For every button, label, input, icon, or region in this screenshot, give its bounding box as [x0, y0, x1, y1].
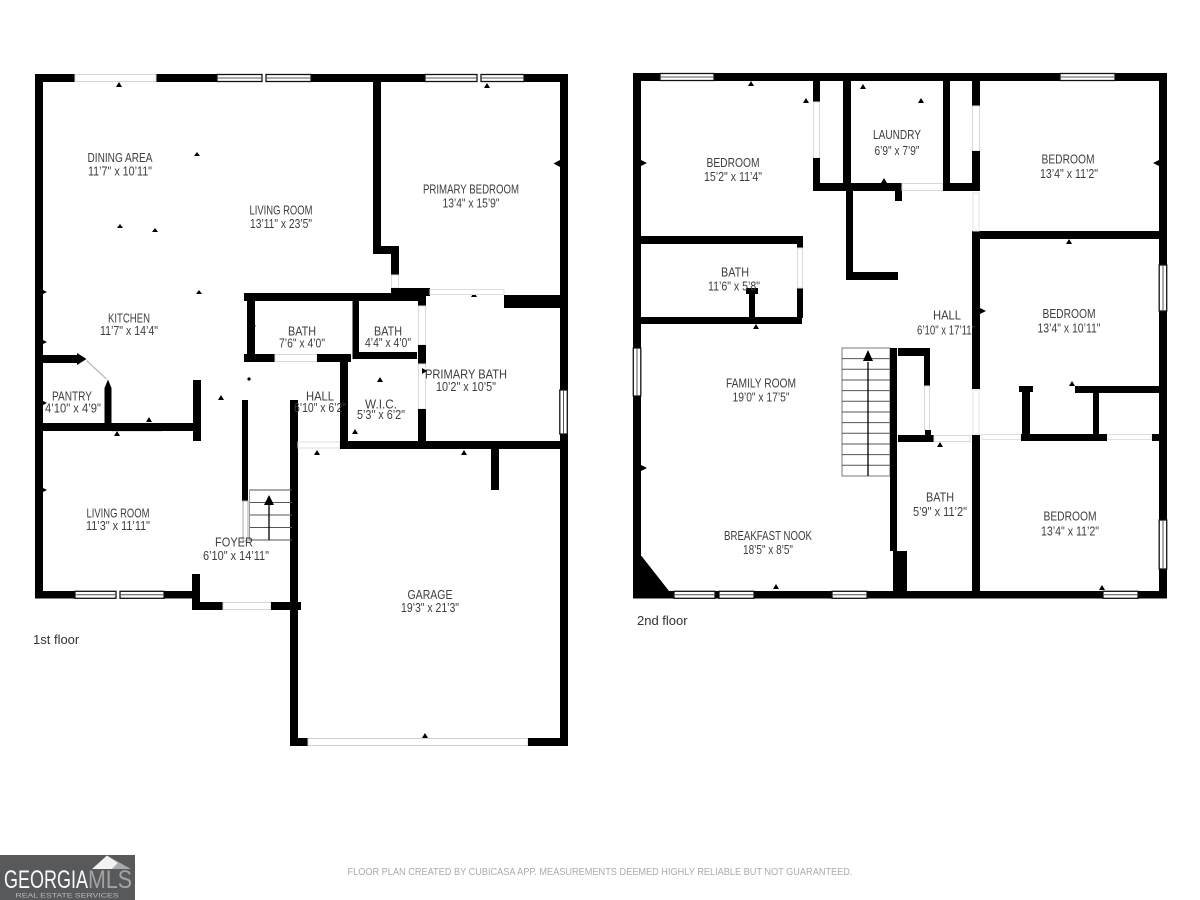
svg-text:13’4" x 15’9": 13’4" x 15’9"	[443, 196, 500, 211]
svg-text:7’6" x 4’0": 7’6" x 4’0"	[279, 336, 325, 351]
svg-text:FLOOR PLAN CREATED BY CUBICASA: FLOOR PLAN CREATED BY CUBICASA APP. MEAS…	[348, 867, 853, 878]
svg-text:BEDROOM: BEDROOM	[1042, 152, 1095, 167]
svg-text:5’9" x 11’2": 5’9" x 11’2"	[913, 504, 967, 519]
svg-text:HALL: HALL	[933, 308, 961, 323]
svg-text:4’4" x 4’0": 4’4" x 4’0"	[365, 335, 411, 350]
svg-text:11’3" x 11’11": 11’3" x 11’11"	[86, 518, 150, 533]
svg-text:19’0" x 17’5": 19’0" x 17’5"	[733, 390, 790, 405]
svg-text:GEORGIA: GEORGIA	[4, 866, 88, 894]
svg-text:13’4" x 10’11": 13’4" x 10’11"	[1038, 321, 1101, 336]
svg-text:BEDROOM: BEDROOM	[707, 155, 760, 170]
svg-text:18’5" x 8’5": 18’5" x 8’5"	[743, 542, 793, 557]
svg-text:15’2" x 11’4": 15’2" x 11’4"	[704, 169, 762, 184]
svg-text:11’7" x 14’4": 11’7" x 14’4"	[100, 323, 158, 338]
svg-text:13’4" x 11’2": 13’4" x 11’2"	[1040, 166, 1098, 181]
svg-text:2nd floor: 2nd floor	[637, 613, 688, 628]
svg-text:11’7" x 10’11": 11’7" x 10’11"	[88, 164, 152, 179]
svg-text:5’3" x 6’2": 5’3" x 6’2"	[357, 407, 405, 422]
svg-text:10’2" x 10’5": 10’2" x 10’5"	[436, 379, 496, 394]
svg-text:LAUNDRY: LAUNDRY	[873, 127, 921, 142]
svg-text:REAL ESTATE SERVICES: REAL ESTATE SERVICES	[16, 894, 119, 900]
svg-text:BEDROOM: BEDROOM	[1044, 509, 1097, 524]
svg-text:11’6" x 5’8": 11’6" x 5’8"	[708, 279, 760, 294]
svg-text:6’10" x 14’11": 6’10" x 14’11"	[203, 548, 269, 563]
svg-text:6’10" x 6’2": 6’10" x 6’2"	[294, 400, 346, 415]
svg-text:MLS: MLS	[88, 866, 132, 894]
svg-text:FAMILY ROOM: FAMILY ROOM	[726, 376, 796, 391]
svg-text:4’10" x 4’9": 4’10" x 4’9"	[45, 401, 101, 416]
svg-text:BEDROOM: BEDROOM	[1043, 306, 1096, 321]
svg-text:6’9" x 7’9": 6’9" x 7’9"	[875, 143, 920, 158]
svg-text:BREAKFAST NOOK: BREAKFAST NOOK	[724, 528, 812, 543]
svg-text:6’10" x 17’11": 6’10" x 17’11"	[917, 323, 975, 338]
svg-text:1st floor: 1st floor	[33, 632, 80, 647]
svg-text:19’3" x 21’3": 19’3" x 21’3"	[401, 600, 459, 615]
svg-text:BATH: BATH	[721, 265, 749, 280]
svg-text:PRIMARY BEDROOM: PRIMARY BEDROOM	[423, 182, 519, 197]
svg-text:BATH: BATH	[926, 490, 954, 505]
svg-text:13’4" x 11’2": 13’4" x 11’2"	[1041, 524, 1099, 539]
svg-text:13’11" x 23’5": 13’11" x 23’5"	[250, 216, 312, 231]
